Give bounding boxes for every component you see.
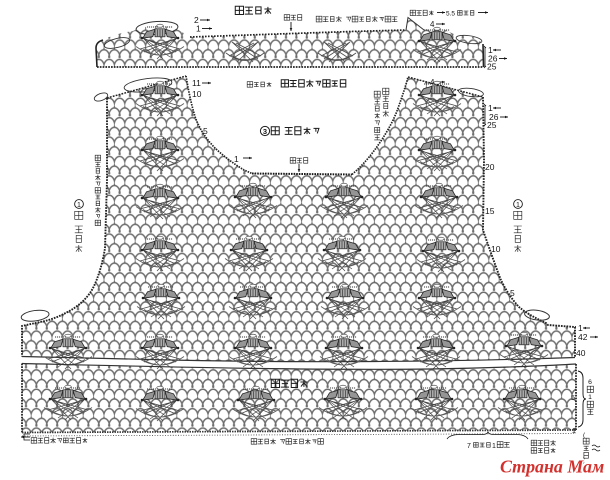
svg-text:11: 11 bbox=[192, 78, 201, 88]
svg-text:40: 40 bbox=[576, 348, 586, 358]
svg-text:3: 3 bbox=[263, 127, 267, 136]
svg-text:25: 25 bbox=[487, 62, 497, 72]
svg-text:1: 1 bbox=[492, 443, 496, 450]
svg-text:20: 20 bbox=[485, 162, 495, 172]
svg-text:1: 1 bbox=[516, 202, 520, 209]
svg-text:1: 1 bbox=[572, 426, 576, 435]
svg-text:6: 6 bbox=[588, 379, 592, 386]
svg-text:1: 1 bbox=[196, 24, 201, 34]
svg-text:7: 7 bbox=[467, 443, 471, 450]
svg-text:25: 25 bbox=[487, 120, 497, 130]
svg-text:Страна Мам: Страна Мам bbox=[500, 457, 604, 477]
svg-text:42: 42 bbox=[578, 332, 588, 342]
svg-text:1: 1 bbox=[77, 202, 81, 209]
svg-text:5: 5 bbox=[203, 126, 208, 136]
svg-text:10: 10 bbox=[491, 244, 501, 254]
svg-text:5.5: 5.5 bbox=[446, 11, 455, 18]
svg-text:5: 5 bbox=[510, 288, 515, 298]
svg-text:1: 1 bbox=[588, 394, 592, 401]
svg-text:15: 15 bbox=[485, 206, 495, 216]
svg-text:1: 1 bbox=[234, 154, 239, 164]
svg-text:5: 5 bbox=[571, 393, 575, 402]
svg-text:10: 10 bbox=[192, 89, 202, 99]
